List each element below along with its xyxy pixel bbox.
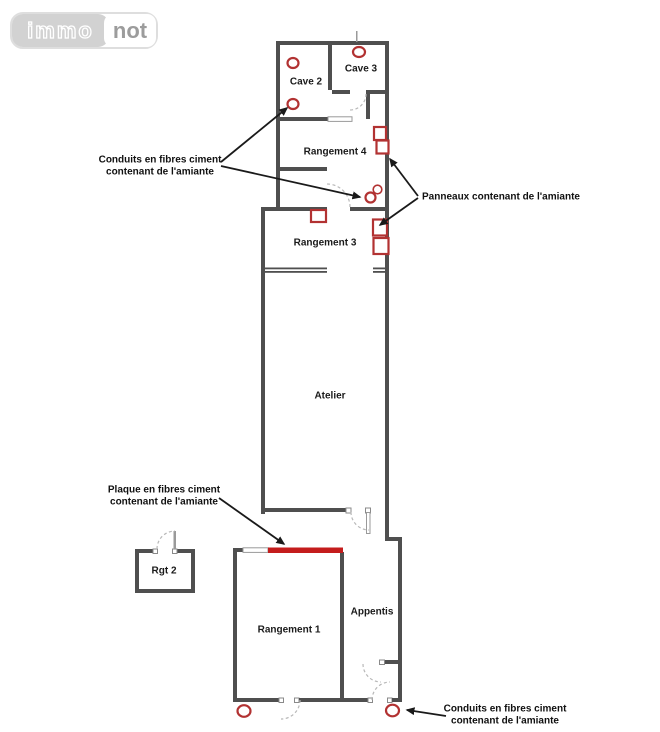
annotation-plaque-line1: Plaque en fibres ciment: [108, 485, 220, 497]
room-label-atelier: Atelier: [314, 391, 345, 402]
arrow-plaque: [219, 498, 284, 544]
arrow-panneaux-upper: [390, 159, 418, 196]
wall-r3-atelier-b2: [373, 271, 385, 273]
wall-cave2-bottom: [280, 117, 328, 121]
arc-appentis-notch-door: [363, 664, 381, 682]
annotation-panneaux: Panneaux contenant de l'amiante: [422, 191, 580, 203]
panel-rect-r4-lower: [377, 141, 389, 154]
room-label-rangement1: Rangement 1: [258, 625, 321, 636]
wall-r1-left: [233, 548, 237, 702]
wall-vestibule-stub: [366, 94, 370, 119]
room-label-appentis: Appentis: [351, 607, 394, 618]
wall-r3-atelier-b1: [373, 268, 385, 270]
annotation-panneaux-line1: Panneaux contenant de l'amiante: [422, 191, 580, 203]
wall-left-lower: [261, 207, 265, 514]
plaque-red-wall-segment: [268, 548, 343, 554]
annotation-conduits-left: Conduits en fibres ciment contenant de l…: [99, 155, 222, 178]
annotation-conduits-left-line2: contenant de l'amiante: [99, 166, 222, 178]
conduit-circle-bottom-right: [386, 705, 399, 717]
wall-caves-top: [276, 41, 389, 45]
wall-r1-appentis-divider: [340, 552, 344, 698]
wall-notch-stub: [385, 660, 402, 664]
conduit-circle-r4-a: [373, 185, 382, 194]
wall-r3-atelier-a1: [265, 268, 327, 270]
walls: [135, 31, 402, 703]
floorplan-svg: [0, 0, 660, 732]
annotation-conduits-bottom-line2: contenant de l'amiante: [444, 715, 567, 727]
arc-appentis-bottom-door: [372, 682, 390, 700]
conduit-circle-bottom-left: [238, 705, 251, 717]
jamb-atelier-door-l: [346, 508, 351, 513]
jamb-r1-door-l: [279, 698, 284, 703]
room-label-rgt2: Rgt 2: [152, 566, 177, 577]
wall-appentis-right-lower: [398, 664, 402, 702]
arc-r4-r3-door: [327, 184, 350, 207]
wall-r3-atelier-a2: [265, 271, 327, 273]
wall-left-upper: [276, 45, 280, 211]
conduit-circle-cave2-lower: [288, 99, 299, 109]
jamb-rgt2-r: [173, 549, 178, 554]
jamb-appentis-door-r: [388, 698, 393, 703]
conduit-circle-cave3: [353, 47, 365, 57]
conduit-circle-r4-b: [366, 193, 376, 203]
arc-cave3-door: [350, 94, 366, 110]
annotation-conduits-bottom: Conduits en fibres ciment contenant de l…: [444, 704, 567, 727]
wall-r4-stub: [280, 167, 327, 171]
wall-bottom-b: [299, 698, 368, 702]
annotation-plaque: Plaque en fibres ciment contenant de l'a…: [108, 485, 220, 508]
panel-rect-r3-right-lower: [374, 238, 389, 254]
chimney-stub: [356, 31, 358, 42]
wall-jog: [385, 537, 402, 541]
wall-bottom-a: [233, 698, 279, 702]
wall-rgt2-left: [135, 549, 139, 593]
door-r1-top: [243, 548, 268, 553]
wall-rgt2-bottom: [135, 589, 195, 593]
panel-rect-r4-upper: [374, 127, 386, 140]
wall-atelier-bottom: [261, 508, 349, 512]
door-atelier-leaf: [367, 513, 371, 534]
panel-rect-r3-top: [311, 210, 326, 222]
wall-appentis-right: [398, 541, 402, 662]
annotation-conduits-bottom-line1: Conduits en fibres ciment: [444, 704, 567, 716]
jamb-r1-door-r: [295, 698, 300, 703]
room-label-rangement4: Rangement 4: [304, 147, 367, 158]
annotation-plaque-line2: contenant de l'amiante: [108, 496, 220, 508]
room-label-cave3: Cave 3: [345, 64, 377, 75]
wall-bottom-c: [392, 698, 402, 702]
wall-cave-divider: [328, 45, 332, 90]
arc-rgt2-door: [157, 531, 175, 549]
arrow-conduits-bottom: [407, 710, 446, 716]
wall-cave3-bottom-a: [332, 90, 350, 94]
door-rgt2-leaf: [174, 531, 177, 549]
annotation-arrows: [219, 108, 446, 716]
conduit-circle-cave2-upper: [288, 58, 299, 68]
room-label-cave2: Cave 2: [290, 77, 322, 88]
wall-rgt2-right: [191, 549, 195, 593]
room-label-rangement3: Rangement 3: [294, 238, 357, 249]
wall-right-main: [385, 45, 389, 541]
annotation-conduits-left-line1: Conduits en fibres ciment: [99, 155, 222, 167]
wall-r1-top-stub: [233, 548, 243, 552]
jamb-rgt2-l: [153, 549, 158, 554]
jamb-notch: [380, 660, 385, 665]
wall-r4-bottom-b: [350, 207, 389, 211]
door-cave2-bottom: [328, 117, 352, 122]
floorplan-page: immo not: [0, 0, 660, 732]
